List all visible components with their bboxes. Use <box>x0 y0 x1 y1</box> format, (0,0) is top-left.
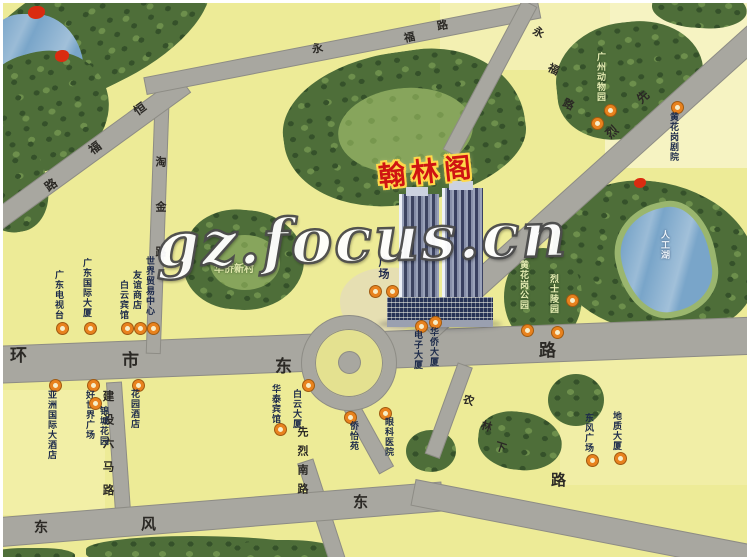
poi-label: 广东电视台 <box>52 270 63 320</box>
poi-label: 友谊商店 <box>130 270 141 310</box>
poi-label: 白云大厦 <box>290 389 301 429</box>
poi-marker-friendship-store <box>135 323 146 334</box>
road-label-huanshi: 路 <box>539 343 556 360</box>
poi-label: 东风广场 <box>582 413 593 453</box>
road-label-yongfu: 福 <box>403 31 416 44</box>
poi-label: 烈士陵园 <box>547 274 558 314</box>
map-canvas: 环 市 东 路 东 风 东 路 恒 福 路 永 福 路 永 福 路 先 烈 农 … <box>0 0 750 560</box>
road-label-huanshi: 环 <box>10 348 27 365</box>
park-patch <box>548 374 604 426</box>
poi-label: 眼科医院 <box>382 417 393 457</box>
poi-label: 地质大厦 <box>610 411 621 451</box>
poi-marker-gd-intl-bldg <box>85 323 96 334</box>
park-bottom-strip <box>0 548 75 560</box>
poi-marker-plaza-east <box>387 286 398 297</box>
road-label-dongfeng: 路 <box>551 473 566 488</box>
road-label-yongfu: 永 <box>311 42 324 55</box>
road-label-huanshi: 东 <box>275 359 292 376</box>
lake-label: 人工湖 <box>658 230 669 260</box>
road-dongfeng-east-east-seg <box>412 480 750 560</box>
park-patch <box>475 408 565 474</box>
road-label-nonglin: 农 <box>462 394 476 408</box>
road-label-dongfeng: 风 <box>141 517 156 532</box>
watermark-gz-focus: gz.focus.cn <box>155 198 569 282</box>
poi-label: 花园酒店 <box>128 389 139 429</box>
poi-label: 亚洲国际大酒店 <box>45 390 56 460</box>
poi-marker-baiyun-bldg <box>303 380 314 391</box>
poi-marker-martyrs-cemetery <box>552 327 563 338</box>
zoo-label: 广州动物园 <box>594 52 605 102</box>
poi-marker-dongfeng-plaza <box>587 455 598 466</box>
poi-marker-gdtv <box>57 323 68 334</box>
road-label-xianlie-south: 先烈南路 <box>297 426 308 502</box>
poi-label: 华泰宾馆 <box>269 384 280 424</box>
poi-marker-huanghuagang-park <box>522 325 533 336</box>
road-label-huanshi: 市 <box>122 353 139 370</box>
road-label-yongfu: 路 <box>436 19 449 32</box>
poi-label: 锦城花园 <box>97 406 108 446</box>
poi-label: 华侨大厦 <box>427 327 438 367</box>
poi-marker-unnamed <box>605 105 616 116</box>
poi-label: 世界贸易中心 <box>143 256 154 316</box>
poi-marker-baiyun-hotel <box>122 323 133 334</box>
poi-label: 白云宾馆 <box>117 280 128 320</box>
poi-label: 广东国际大厦 <box>80 258 91 318</box>
poi-marker-world-trade <box>148 323 159 334</box>
road-label-dongfeng: 东 <box>353 495 368 510</box>
poi-marker-plaza-west <box>370 286 381 297</box>
roundabout-island <box>339 352 360 373</box>
poi-label: 黄花岗剧院 <box>667 112 678 162</box>
park-bottom-strip <box>228 540 338 560</box>
poi-label: 侨怡苑 <box>347 421 358 451</box>
poi-marker-huatai-hotel <box>275 424 286 435</box>
poi-marker-park-gate <box>567 295 578 306</box>
poi-marker-geology-bldg <box>615 453 626 464</box>
poi-label: 电子大厦 <box>411 330 422 370</box>
road-label-dongfeng: 东 <box>34 521 48 535</box>
poi-marker-unnamed <box>592 118 603 129</box>
